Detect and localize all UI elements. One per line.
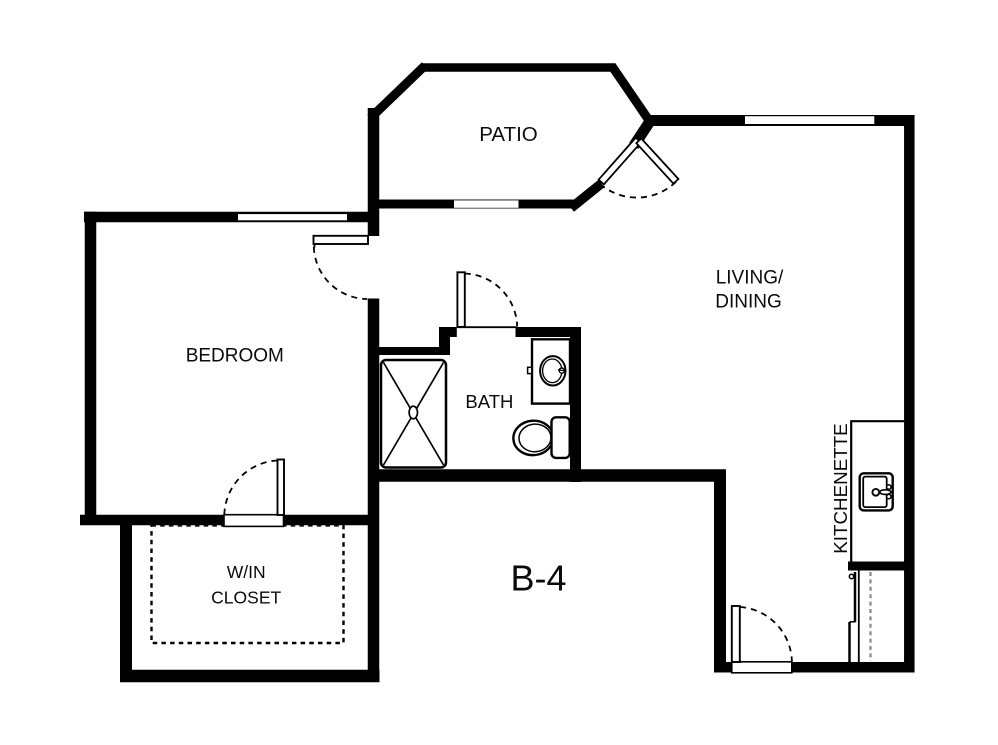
svg-text:CLOSET: CLOSET	[211, 587, 281, 607]
svg-text:W/IN: W/IN	[227, 562, 266, 582]
svg-text:PATIO: PATIO	[479, 123, 537, 146]
svg-text:KITCHENETTE: KITCHENETTE	[830, 423, 851, 553]
svg-text:B-4: B-4	[510, 558, 566, 599]
svg-text:DINING: DINING	[715, 291, 782, 312]
svg-text:BEDROOM: BEDROOM	[186, 346, 284, 367]
svg-text:BATH: BATH	[465, 391, 513, 412]
svg-text:LIVING/: LIVING/	[716, 267, 784, 288]
